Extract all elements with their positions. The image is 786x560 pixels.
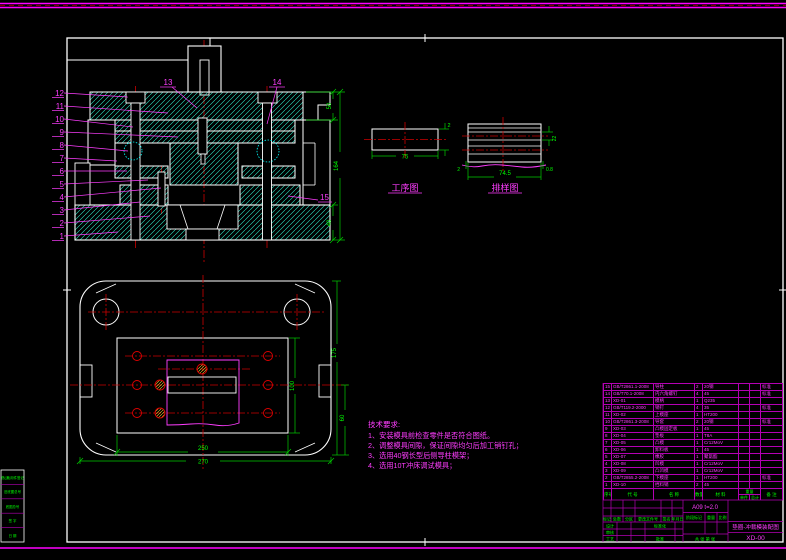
balloon-2: 2 [60,219,65,228]
bom-cell-each [739,468,750,474]
bom-cell-no: 14 [604,391,612,397]
bom-cell-each [739,454,750,460]
table-row: 10 GB/T2861.3-2008 导套 2 20钢 标准 [604,418,783,425]
strip-outline [468,124,541,162]
screw-head-left [126,92,145,103]
material-spec: A09 t=2.0 [692,505,719,511]
bom-cell-qty: 1 [695,447,703,453]
table-row: 6 XD-06 卸料板 1 45 [604,446,783,453]
bom-header-each: 单件 [739,495,750,500]
bom-cell-each [739,475,750,481]
bom-cell-each [739,447,750,453]
bom-cell-qty: 1 [695,433,703,439]
bom-cell-remark [761,468,783,474]
bom-cell-code: XD-05 [612,440,654,446]
bom-cell-code: XD-01 [612,398,654,404]
bom-cell-name: 模柄 [654,398,695,404]
margin-row-label: 日 期 [9,533,17,538]
bom-cell-total [750,419,761,425]
bom-cell-material: Q235 [703,398,739,404]
label-standard: 标准化 [654,523,666,529]
bom-cell-material: 20钢 [703,384,739,390]
bom-cell-qty: 1 [695,440,703,446]
bom-header-total: 总计 [750,495,760,500]
note-line: 4、选用10T冲床调试模具； [368,461,456,470]
bom-cell-total [750,440,761,446]
dim-label-50: 50 [327,102,333,109]
bom-cell-qty: 4 [695,391,703,397]
bom-cell-total [750,454,761,460]
bom-cell-each [739,440,750,446]
bom-header-no: 序号 [604,489,612,500]
balloon-10: 10 [55,115,64,124]
bom-cell-qty: 1 [695,412,703,418]
table-row: 7 XD-05 凸模 1 Cr12MoV [604,439,783,446]
bom-cell-name: 上模座 [654,412,695,418]
bom-header: 序号 代 号 名 称 数量 材 料 重量 单件 总计 备 注 [603,488,783,500]
table-row: 4 XD-08 凹模 1 Cr12MoV [604,460,783,467]
bom-cell-code: GB/T119.2-2000 [612,405,654,411]
bom-cell-remark: 标准 [761,391,783,397]
plan-centerlines [70,275,348,470]
table-row: 14 GB/T70.1-2008 内六角螺钉 4 45 标准 [604,390,783,397]
balloon-12: 12 [55,89,64,98]
note-line: 1、安装模具前检查零件是否符合图纸。 [368,431,494,440]
bom-cell-name: 内六角螺钉 [654,391,695,397]
bom-cell-material: 45 [703,447,739,453]
bom-cell-no: 6 [604,447,612,453]
bom-cell-name: 凸凹模 [654,468,695,474]
bom-header-qty: 数量 [695,489,703,500]
balloon-15: 15 [320,193,329,202]
bom-cell-name: 销钉 [654,405,695,411]
bom-cell-code: XD-02 [612,412,654,418]
label-design: 设计 [606,523,614,529]
balloon-8: 8 [60,141,65,150]
label-sheets: 共 张 第 张 [695,536,716,543]
bom-cell-each [739,405,750,411]
notes-title: 技术要求: [368,419,400,429]
die-plate-outline [117,338,288,433]
bom-cell-qty: 1 [695,468,703,474]
bom-cell-name: 凸模 [654,440,695,446]
process-view: 75 2 工序图 [364,122,451,193]
bom-header-weight: 重量 单件 总计 [739,489,761,500]
bom-cell-no: 5 [604,454,612,460]
bom-cell-qty: 1 [695,475,703,481]
label-date: 年月日 [672,516,684,522]
main-section-view: 12 11 10 9 8 7 6 5 4 3 2 1 [52,40,345,262]
strip-torn-edge [462,165,546,168]
bom-cell-remark: 标准 [761,384,783,390]
table-row: 15 GB/T2861.1-2008 导柱 2 20钢 标准 [604,383,783,390]
bom-cell-no: 13 [604,398,612,404]
bom-cell-code: XD-08 [612,461,654,467]
dim-label-40: 40 [327,219,333,226]
label-scale: 比例 [719,514,727,520]
side-notch-left [80,365,92,397]
bom-cell-total [750,468,761,474]
bom-cell-no: 9 [604,426,612,432]
balloon-14: 14 [273,78,282,87]
bom-rows: 15 GB/T2861.1-2008 导柱 2 20钢 标准 14 GB/T70… [603,383,783,488]
bom-cell-material: 45 [703,426,739,432]
bom-cell-remark: 标准 [761,405,783,411]
bom-cell-total [750,412,761,418]
margin-row-label: 签 字 [9,518,17,523]
bom-cell-total [750,447,761,453]
bom-cell-total [750,384,761,390]
bom-cell-no: 4 [604,461,612,467]
bom-cell-qty: 4 [695,405,703,411]
margin-row-label: 旧底图总号 [4,489,22,494]
bom-cell-remark [761,461,783,467]
bom-cell-remark [761,398,783,404]
table-row: 3 XD-09 凸凹模 1 Cr12MoV [604,467,783,474]
bom-cell-remark [761,454,783,460]
plan-dim-lines [77,281,349,464]
bom-cell-remark [761,440,783,446]
punch-tip [201,154,205,164]
bom-cell-qty: 2 [695,419,703,425]
bom-cell-name: 橡胶 [654,454,695,460]
label-check: 审核 [606,529,614,535]
bom-cell-material: HT200 [703,412,739,418]
dim-label-thickness: 2 [447,123,450,129]
dim-label-270: 270 [198,460,209,466]
bom-cell-name: 导套 [654,419,695,425]
label-weight: 重量 [707,514,715,520]
balloon-4: 4 [60,193,65,202]
dim-label-100: 100 [290,380,296,391]
bom-cell-each [739,391,750,397]
bom-header-name: 名 称 [654,489,695,500]
label-mark: 标记 [603,516,611,522]
dowel-pin [158,172,165,206]
bom-cell-code: XD-06 [612,447,654,453]
label-zone: 分区 [625,516,633,522]
label-stage: 阶段标记 [686,514,702,520]
bom-cell-no: 12 [604,405,612,411]
bom-cell-qty: 1 [695,398,703,404]
screw-holes [133,352,273,418]
bom-cell-remark [761,447,783,453]
upper-shoe-step [303,92,330,120]
bom-cell-code: GB/T2855.2-2008 [612,475,654,481]
bom-header-material: 材 料 [703,489,739,500]
bom-cell-total [750,398,761,404]
balloon-9: 9 [60,128,65,137]
bom-header-remark: 备 注 [761,489,783,500]
table-row: 1 XD-10 挡料销 2 45 [604,481,783,488]
strip-layout-view: 74.5 22 2 0.8 排样图 [457,117,558,193]
table-row: 2 GB/T2855.2-2008 下模座 1 HT200 标准 [604,474,783,481]
dim-label-164: 164 [334,160,340,171]
dowel-holes [155,364,207,418]
bom-cell-total [750,426,761,432]
table-row: 13 XD-01 模柄 1 Q235 [604,397,783,404]
label-count: 处数 [613,516,621,522]
bom-cell-material: 45 [703,391,739,397]
bom-cell-total [750,433,761,439]
strip-view-label: 排样图 [491,182,518,193]
technical-notes: 技术要求: 1、安装模具前检查零件是否符合图纸。 2、调整模具间隙，保证间隙均匀… [368,419,523,470]
bom-cell-material: 35 [703,405,739,411]
bom-cell-total [750,405,761,411]
balloon-1: 1 [60,232,65,241]
left-step-block [75,163,90,205]
bom-cell-qty: 1 [695,426,703,432]
dim-label-margin-left: 2 [457,167,460,173]
bom-cell-remark: 标准 [761,475,783,481]
guide-pillar-left [131,103,140,240]
note-line: 2、调整模具间隙，保证间隙均匀后加工销钉孔； [368,441,523,450]
bom-cell-remark [761,433,783,439]
bom-cell-name: 导柱 [654,384,695,390]
note-line: 3、选用40钢长型后侧导柱模架； [368,451,473,460]
bom-cell-each [739,433,750,439]
bom-cell-no: 11 [604,412,612,418]
bom-cell-name: 下模座 [654,475,695,481]
bom-cell-no: 10 [604,419,612,425]
bom-cell-code: XD-04 [612,433,654,439]
bom-cell-each [739,461,750,467]
bom-cell-code: XD-07 [612,454,654,460]
dim-label-60: 60 [340,414,346,421]
slug-exit [186,229,219,240]
bom-cell-no: 3 [604,468,612,474]
label-process: 工艺 [606,537,614,542]
dim-label-margin-right: 0.8 [546,167,553,173]
bom-cell-total [750,461,761,467]
dim-label-175: 175 [332,347,338,358]
bom-cell-each [739,384,750,390]
slug-hole [167,205,238,229]
bom-cell-remark [761,426,783,432]
dim-label-width: 75 [402,155,409,161]
bom-table: 15 GB/T2861.1-2008 导柱 2 20钢 标准 14 GB/T70… [603,383,783,500]
table-row: 9 XD-03 凸模固定板 1 45 [604,425,783,432]
title-block-labels: 标记 处数 分区 更改文件号 签名 年月日 设计 审核 工艺 标准化 批准 阶段… [603,514,727,543]
balloon-3: 3 [60,206,65,215]
bom-cell-remark: 标准 [761,419,783,425]
margin-row-label: 借(通)用件登记 [1,475,24,480]
bom-cell-remark [761,412,783,418]
balloon-13: 13 [164,78,173,87]
bom-cell-name: 垫板 [654,433,695,439]
bom-cell-code: GB/T70.1-2008 [612,391,654,397]
margin-row-label: 底图总号 [6,504,20,509]
bom-cell-material: T8A [703,433,739,439]
process-dims [372,123,449,159]
margin-table: 借(通)用件登记 旧底图总号 底图总号 签 字 日 期 [1,470,24,542]
dim-label-pitch: 74.5 [499,171,511,177]
bom-cell-name: 凸模固定板 [654,426,695,432]
drawing-title: 垫圈-冲裁模装配图 [732,523,779,531]
label-signature: 签名 [663,516,671,522]
bom-cell-code: XD-03 [612,426,654,432]
side-notch-right [319,365,331,397]
dim-label-strip-width: 22 [552,136,558,142]
balloon-11: 11 [56,102,65,111]
balloon-7: 7 [60,154,65,163]
bom-cell-no: 2 [604,475,612,481]
balloon-5: 5 [60,180,65,189]
cad-sheet: 借(通)用件登记 旧底图总号 底图总号 签 字 日 期 [0,0,786,560]
bom-cell-code: GB/T2861.3-2008 [612,419,654,425]
bom-cell-each [739,412,750,418]
drawing-number: XD-00 [746,535,765,542]
guide-bush-left [88,120,115,165]
center-punch-pin [198,118,207,154]
bom-cell-material: Cr12MoV [703,468,739,474]
plan-view: 250 270 175 100 60 [70,275,349,470]
bom-cell-each [739,419,750,425]
bom-cell-total [750,391,761,397]
table-row: 12 GB/T119.2-2000 销钉 4 35 标准 [604,404,783,411]
bom-cell-name: 卸料板 [654,447,695,453]
bom-cell-qty: 2 [695,384,703,390]
bom-cell-name: 凹模 [654,461,695,467]
process-view-label: 工序图 [391,182,418,193]
bom-cell-material: 聚氨酯 [703,454,739,460]
bom-cell-material: Cr12MoV [703,461,739,467]
knockout-rod [200,60,209,95]
bom-cell-material: HT200 [703,475,739,481]
bom-cell-each [739,398,750,404]
bom-cell-material: Cr12MoV [703,440,739,446]
bom-cell-qty: 1 [695,454,703,460]
bom-cell-no: 15 [604,384,612,390]
balloon-6: 6 [60,167,65,176]
bom-cell-each [739,426,750,432]
bom-cell-code: GB/T2861.1-2008 [612,384,654,390]
bom-cell-no: 8 [604,433,612,439]
label-approve: 批准 [656,536,664,542]
bom-cell-no: 7 [604,440,612,446]
bom-cell-qty: 1 [695,461,703,467]
bom-header-code: 代 号 [612,489,654,500]
table-row: 11 XD-02 上模座 1 HT200 [604,411,783,418]
bom-cell-total [750,475,761,481]
bom-cell-material: 20钢 [703,419,739,425]
dim-label-250: 250 [198,446,209,452]
label-change-doc: 更改文件号 [638,516,658,522]
bom-cell-code: XD-09 [612,468,654,474]
table-row: 5 XD-07 橡胶 1 聚氨酯 [604,453,783,460]
table-row: 8 XD-04 垫板 1 T8A [604,432,783,439]
balloon-labels-left: 12 11 10 9 8 7 6 5 4 3 2 1 [55,89,64,241]
